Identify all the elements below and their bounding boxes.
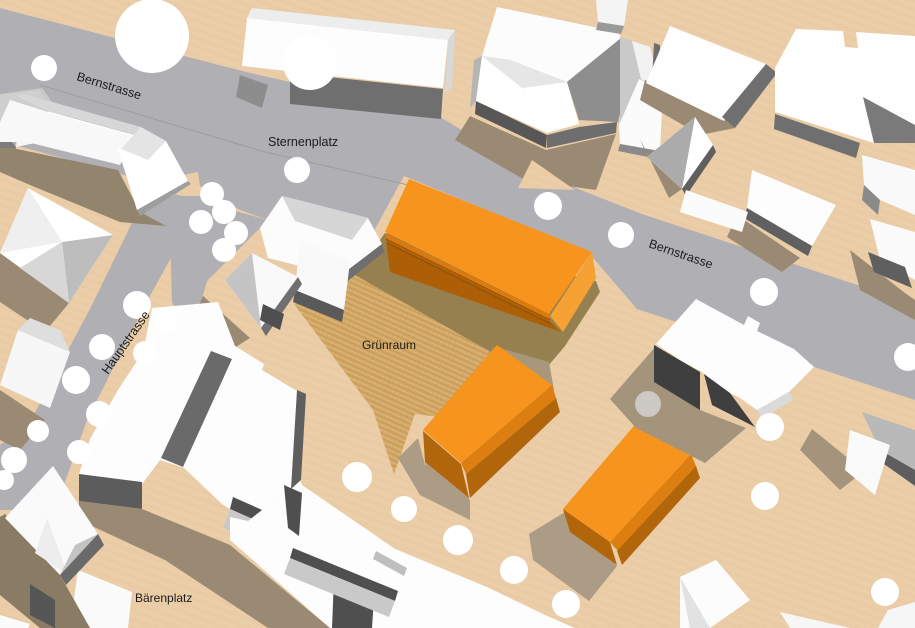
svg-text:Grünraum: Grünraum xyxy=(362,338,416,352)
svg-text:Sternenplatz: Sternenplatz xyxy=(268,135,338,149)
svg-text:Bärenplatz: Bärenplatz xyxy=(135,591,192,605)
